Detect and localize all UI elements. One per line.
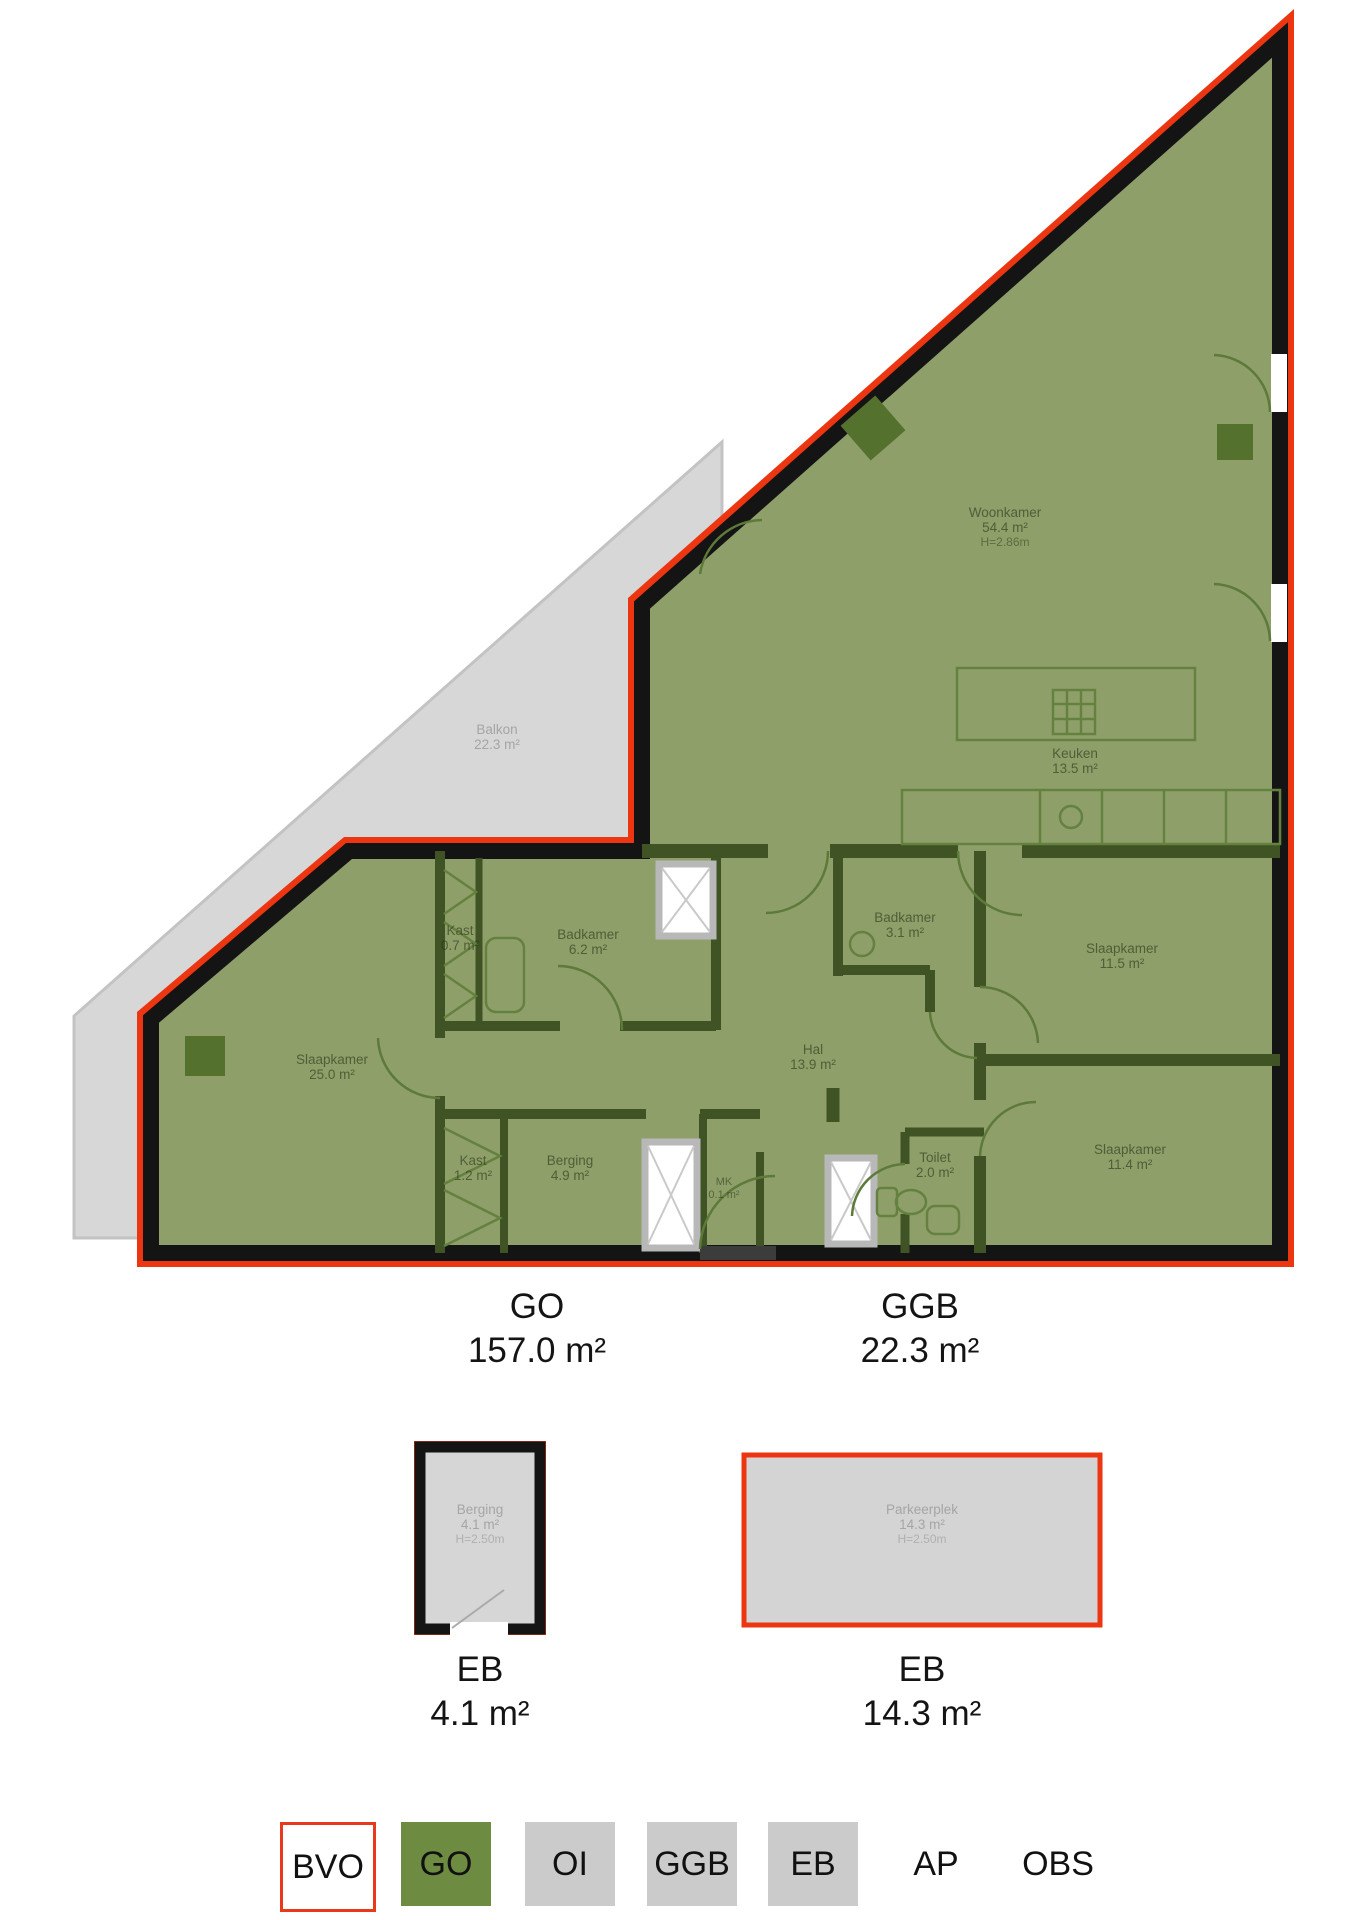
room-label-berging: Berging 4.9 m² [547,1153,594,1183]
shaft-lower-left [645,1142,697,1248]
room-label-badkamer-2: Badkamer 3.1 m² [874,910,936,940]
legend-item-bvo: BVO [280,1822,376,1912]
annex-label-berging: Berging 4.1 m² H=2.50m [455,1502,504,1547]
room-label-balkon: Balkon 22.3 m² [474,722,520,752]
annex-label-parkeerplek: Parkeerplek 14.3 m² H=2.50m [886,1502,958,1547]
room-label-slaapkamer-2: Slaapkamer 25.0 m² [296,1052,368,1082]
room-label-slaapkamer-3: Slaapkamer 11.4 m² [1094,1142,1166,1172]
legend-item-oi: OI [525,1822,615,1906]
column-left [185,1036,225,1076]
legend-item-ggb: GGB [647,1822,737,1906]
room-label-kast-2: Kast 1.2 m² [454,1153,492,1183]
front-door [700,1246,776,1260]
floorplan-canvas: Woonkamer 54.4 m² H=2.86m Keuken 13.5 m²… [0,0,1358,1920]
legend-item-go: GO [401,1822,491,1906]
room-label-badkamer-1: Badkamer 6.2 m² [557,927,619,957]
shaft-upper [659,864,713,936]
room-label-kast-1: Kast 0.7 m² [441,923,479,953]
legend-item-obs: OBS [1013,1822,1103,1906]
summary-eb-parkeerplek: EB 14.3 m² [863,1648,982,1736]
summary-eb-berging: EB 4.1 m² [430,1648,529,1736]
legend-item-eb: EB [768,1822,858,1906]
shaft-lower-right [828,1158,874,1244]
room-label-hal: Hal 13.9 m² [790,1042,836,1072]
summary-go: GO 157.0 m² [468,1285,606,1373]
legend-item-ap: AP [891,1822,981,1906]
summary-ggb: GGB 22.3 m² [861,1285,980,1373]
column-right [1217,424,1253,460]
room-label-mk: MK 0.1 m² [708,1176,739,1202]
room-label-toilet: Toilet 2.0 m² [916,1150,954,1180]
room-label-woonkamer: Woonkamer 54.4 m² H=2.86m [969,505,1042,550]
room-label-keuken: Keuken 13.5 m² [1052,746,1098,776]
room-label-slaapkamer-1: Slaapkamer 11.5 m² [1086,941,1158,971]
